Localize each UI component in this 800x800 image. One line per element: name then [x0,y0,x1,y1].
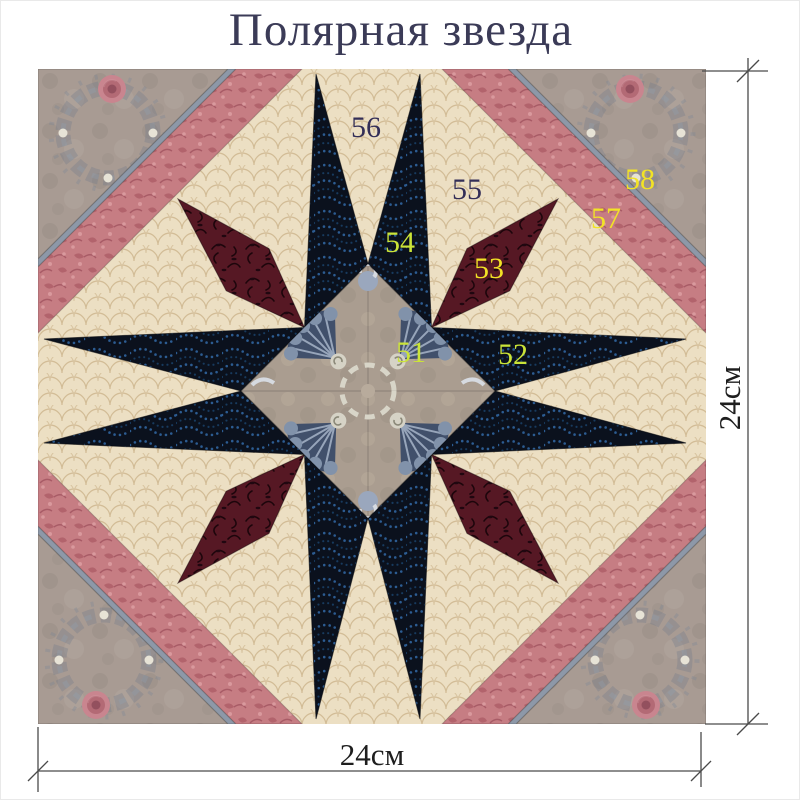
piece-label-56: 56 [351,113,381,143]
page: Полярная звезда [0,0,800,800]
height-dimension-label: 24см [712,366,748,430]
piece-label-54: 54 [385,228,415,258]
page-title: Полярная звезда [1,3,800,57]
width-dimension-label: 24см [340,737,404,773]
piece-label-57: 57 [591,204,621,234]
piece-label-53: 53 [474,254,504,284]
piece-label-51: 51 [396,338,426,368]
quilt-block-photo [38,69,706,724]
piece-label-58: 58 [625,165,655,195]
piece-label-52: 52 [498,340,528,370]
piece-label-55: 55 [452,175,482,205]
